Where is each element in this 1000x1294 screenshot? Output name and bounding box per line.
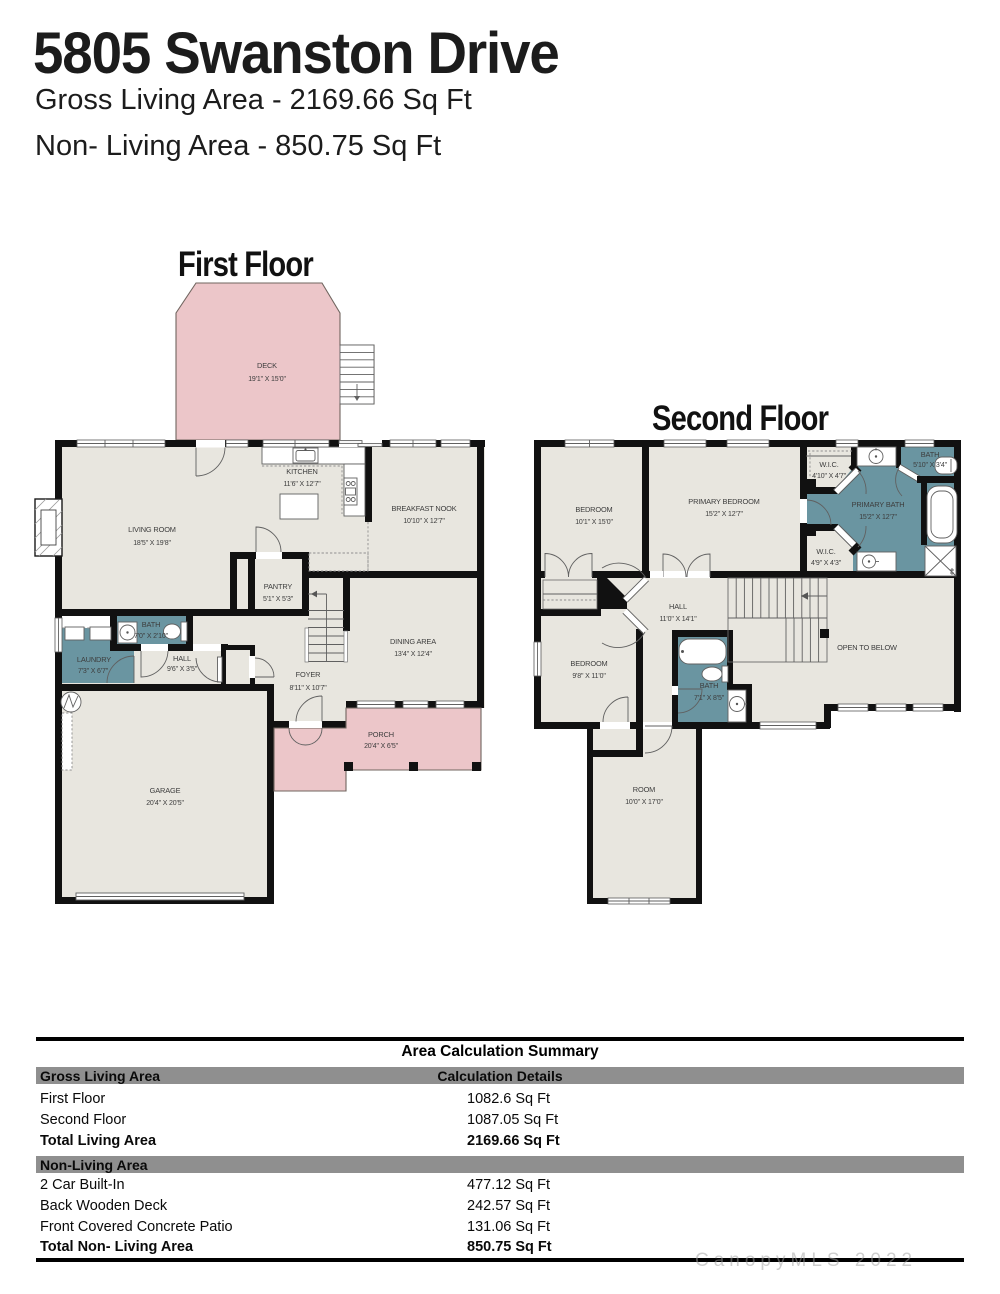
svg-text:BEDROOM: BEDROOM — [570, 659, 607, 668]
svg-text:DECK: DECK — [257, 361, 277, 370]
svg-text:11'6" X 12'7": 11'6" X 12'7" — [283, 481, 321, 488]
svg-text:GARAGE: GARAGE — [150, 786, 181, 795]
svg-text:KITCHEN: KITCHEN — [286, 467, 317, 476]
svg-text:7'0" X 2'10": 7'0" X 2'10" — [134, 633, 169, 640]
svg-text:PRIMARY BEDROOM: PRIMARY BEDROOM — [688, 497, 759, 506]
svg-text:15'2" X 12'7": 15'2" X 12'7" — [705, 511, 743, 518]
svg-text:19'1" X 15'0": 19'1" X 15'0" — [248, 376, 286, 383]
svg-text:DINING AREA: DINING AREA — [390, 637, 436, 646]
svg-text:BEDROOM: BEDROOM — [575, 505, 612, 514]
svg-text:13'4" X 12'4": 13'4" X 12'4" — [394, 651, 432, 658]
svg-text:W.I.C.: W.I.C. — [819, 460, 838, 469]
svg-text:W.I.C.: W.I.C. — [816, 547, 835, 556]
svg-text:10'1" X 15'0": 10'1" X 15'0" — [575, 519, 613, 526]
svg-text:5'1" X 5'3": 5'1" X 5'3" — [263, 596, 294, 603]
svg-text:BATH: BATH — [921, 450, 940, 459]
svg-text:15'2" X 12'7": 15'2" X 12'7" — [859, 514, 897, 521]
svg-text:BREAKFAST NOOK: BREAKFAST NOOK — [391, 504, 456, 513]
svg-text:FOYER: FOYER — [296, 670, 321, 679]
svg-text:11'0" X 14'1": 11'0" X 14'1" — [659, 616, 697, 623]
svg-text:PRIMARY BATH: PRIMARY BATH — [852, 500, 905, 509]
svg-text:20'4" X 20'5": 20'4" X 20'5" — [146, 800, 184, 807]
svg-text:18'5" X 19'8": 18'5" X 19'8" — [133, 540, 171, 547]
svg-text:4'9" X 4'3": 4'9" X 4'3" — [811, 560, 842, 567]
svg-text:ROOM: ROOM — [633, 785, 655, 794]
svg-text:PORCH: PORCH — [368, 730, 394, 739]
svg-text:8'11" X 10'7": 8'11" X 10'7" — [289, 685, 327, 692]
svg-text:20'4" X 6'5": 20'4" X 6'5" — [364, 743, 399, 750]
svg-text:4'10" X 4'7": 4'10" X 4'7" — [812, 473, 847, 480]
svg-text:HALL: HALL — [669, 602, 687, 611]
svg-text:LAUNDRY: LAUNDRY — [77, 655, 111, 664]
svg-text:BATH: BATH — [142, 620, 161, 629]
svg-text:5'10" X 3'4": 5'10" X 3'4" — [913, 462, 948, 469]
svg-text:7'1" X 8'5": 7'1" X 8'5" — [694, 695, 725, 702]
svg-text:10'0" X 17'0": 10'0" X 17'0" — [625, 799, 663, 806]
svg-text:LIVING ROOM: LIVING ROOM — [128, 525, 176, 534]
svg-text:7'3" X 6'7": 7'3" X 6'7" — [78, 668, 109, 675]
svg-text:OPEN TO BELOW: OPEN TO BELOW — [837, 643, 897, 652]
svg-text:9'6" X 3'5": 9'6" X 3'5" — [167, 666, 198, 673]
svg-text:9'8" X 11'0": 9'8" X 11'0" — [572, 673, 606, 680]
svg-text:10'10" X 12'7": 10'10" X 12'7" — [403, 518, 445, 525]
svg-text:PANTRY: PANTRY — [264, 582, 293, 591]
svg-text:BATH: BATH — [700, 681, 719, 690]
svg-text:HALL: HALL — [173, 654, 191, 663]
